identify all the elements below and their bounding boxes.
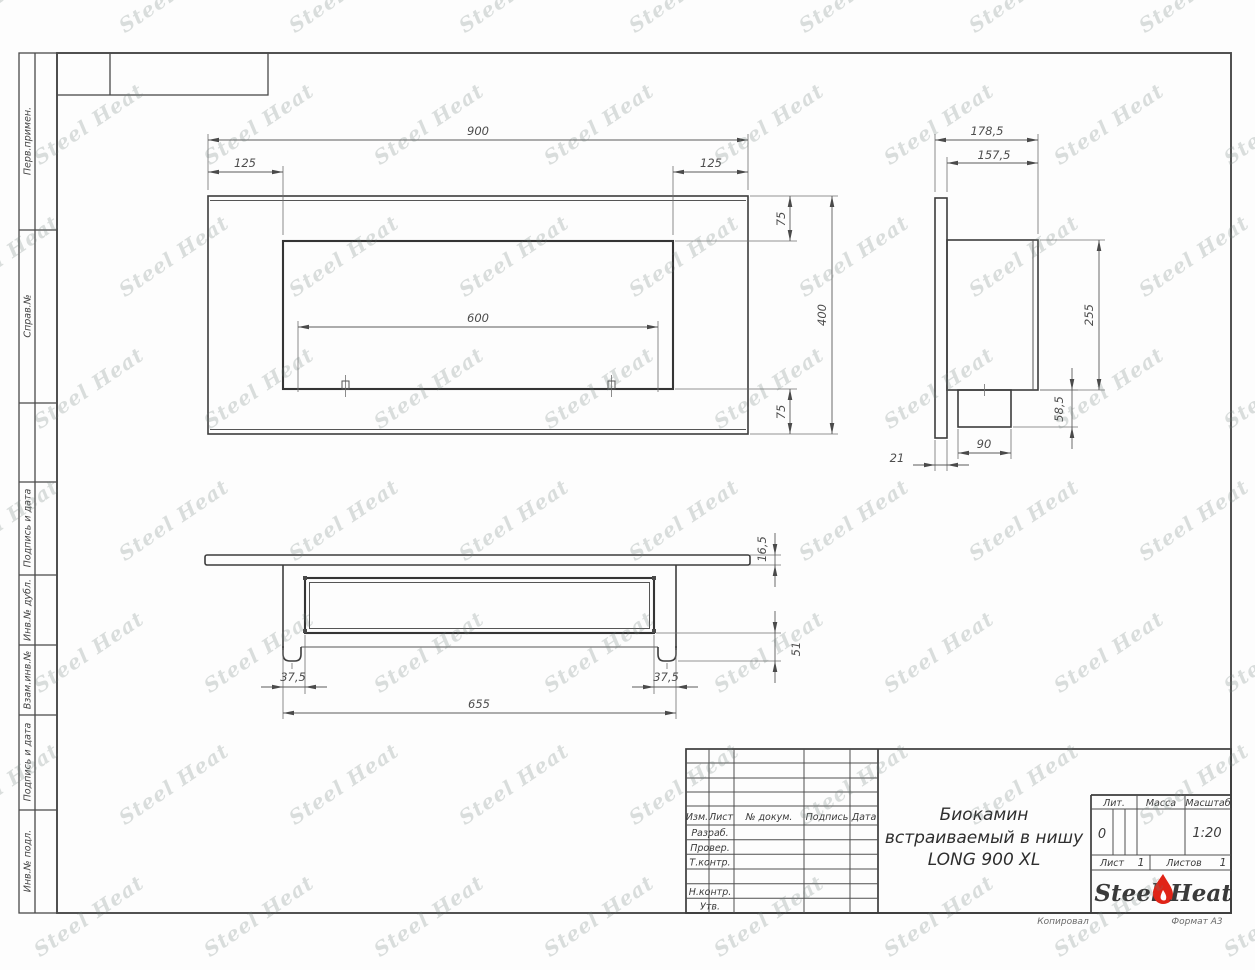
bottom-view [205,555,750,669]
dimension-label: 75 [774,405,788,420]
margin-label: Инв.№ дубл. [23,579,34,641]
margin-label: Подпись и дата [23,722,34,801]
foot-left [283,646,301,661]
burner-clip-right [608,375,615,397]
col-sign: Подпись [806,812,849,823]
doc-title-line1: Биокамин [940,805,1029,825]
sheet-frame [19,53,1231,913]
sheet-label: Лист [1099,858,1125,869]
steelheat-logo: Steel Heat [1094,874,1232,907]
mass-label: Масса [1146,798,1176,809]
burner-clip-left [342,375,349,397]
margin-label: Взам.инв.№ [23,651,34,710]
margin-label: Подпись и дата [23,488,34,567]
row-checked: Провер. [690,843,729,854]
dimension-label: 16,5 [755,536,769,562]
dimension-label: 37,5 [653,670,679,684]
sheets-value: 1 [1220,856,1227,869]
dimension-label: 178,5 [971,124,1004,138]
col-doc: № докум. [745,812,793,823]
foot-right [658,646,676,661]
doc-title-line3: LONG 900 XL [928,850,1041,870]
logo-text-steel: Steel [1094,880,1160,907]
scale-label: Масштаб [1185,798,1230,809]
lit-value: 0 [1098,827,1106,842]
dimension-label: 58,5 [1052,396,1066,422]
logo-text-heat: Heat [1169,880,1232,907]
dimension-label: 21 [890,451,905,465]
margin-label: Перв.примен. [23,107,34,175]
col-list: Лист [708,812,734,823]
row-developed: Разраб. [691,828,728,839]
drawing-svg: Перв.примен. Справ.№ Подпись и дата Инв.… [0,0,1255,970]
col-date: Дата [851,812,877,823]
dimension-label: 37,5 [280,670,306,684]
corner-stamp-box [57,53,268,95]
dimension-label: 655 [468,697,490,711]
title-block: Изм. Лист № докум. Подпись Дата Разраб. … [686,749,1232,927]
row-ncontrol: Н.контр. [689,887,732,898]
dimension-label: 51 [789,642,803,657]
dimension-label: 900 [467,124,489,138]
doc-title-line2: встраиваемый в нишу [885,828,1084,848]
side-view [935,198,1038,438]
dimension-label: 157,5 [978,148,1011,162]
dimension-label: 125 [234,156,256,170]
sheet-value: 1 [1138,856,1145,869]
dimension-label: 90 [977,437,992,451]
dimension-label: 255 [1082,304,1096,326]
scale-value: 1:20 [1192,826,1221,841]
row-tcontrol: Т.контр. [689,858,730,869]
row-approved: Утв. [700,902,720,913]
margin-label: Инв.№ подл. [23,830,34,893]
sheets-label: Листов [1165,858,1202,869]
dimension-label: 400 [815,304,829,326]
format-note: Формат А3 [1171,917,1223,927]
dimension-label: 600 [467,311,489,325]
copy-note: Копировал [1037,917,1089,927]
col-izm: Изм. [686,812,708,823]
drawing-sheet: Перв.примен. Справ.№ Подпись и дата Инв.… [0,0,1255,970]
dimension-label: 125 [700,156,722,170]
dimension-annotations: 9001251256007540075178,5157,525558,59021… [208,124,1105,719]
lit-label: Лит. [1102,798,1125,809]
margin-label: Справ.№ [23,294,34,337]
dimension-label: 75 [774,212,788,227]
margin-labels: Перв.примен. Справ.№ Подпись и дата Инв.… [23,107,34,892]
